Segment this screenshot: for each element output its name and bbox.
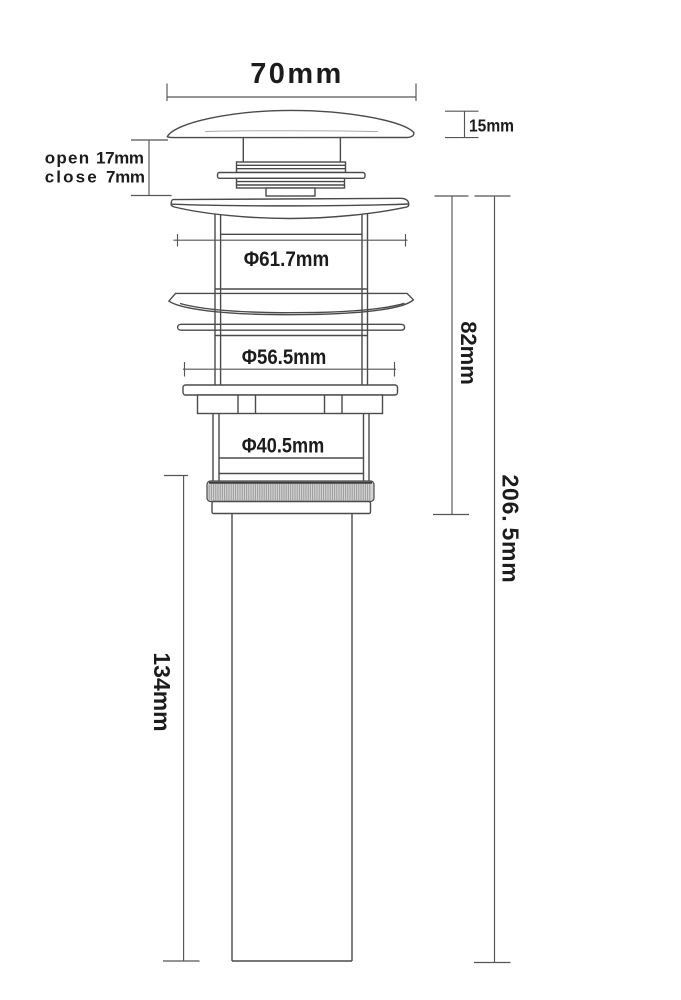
svg-text:Φ40.5mm: Φ40.5mm <box>242 434 324 457</box>
svg-text:Φ56.5mm: Φ56.5mm <box>242 346 327 369</box>
svg-text:17mm: 17mm <box>96 149 144 168</box>
svg-text:70mm: 70mm <box>250 58 343 90</box>
svg-text:15mm: 15mm <box>469 116 514 136</box>
svg-text:82mm: 82mm <box>456 321 481 385</box>
svg-text:134mm: 134mm <box>149 652 175 731</box>
svg-text:7mm: 7mm <box>106 168 145 187</box>
svg-text:Φ61.7mm: Φ61.7mm <box>244 248 330 271</box>
svg-text:206.5mm: 206.5mm <box>498 474 524 583</box>
svg-text:close: close <box>45 168 97 187</box>
